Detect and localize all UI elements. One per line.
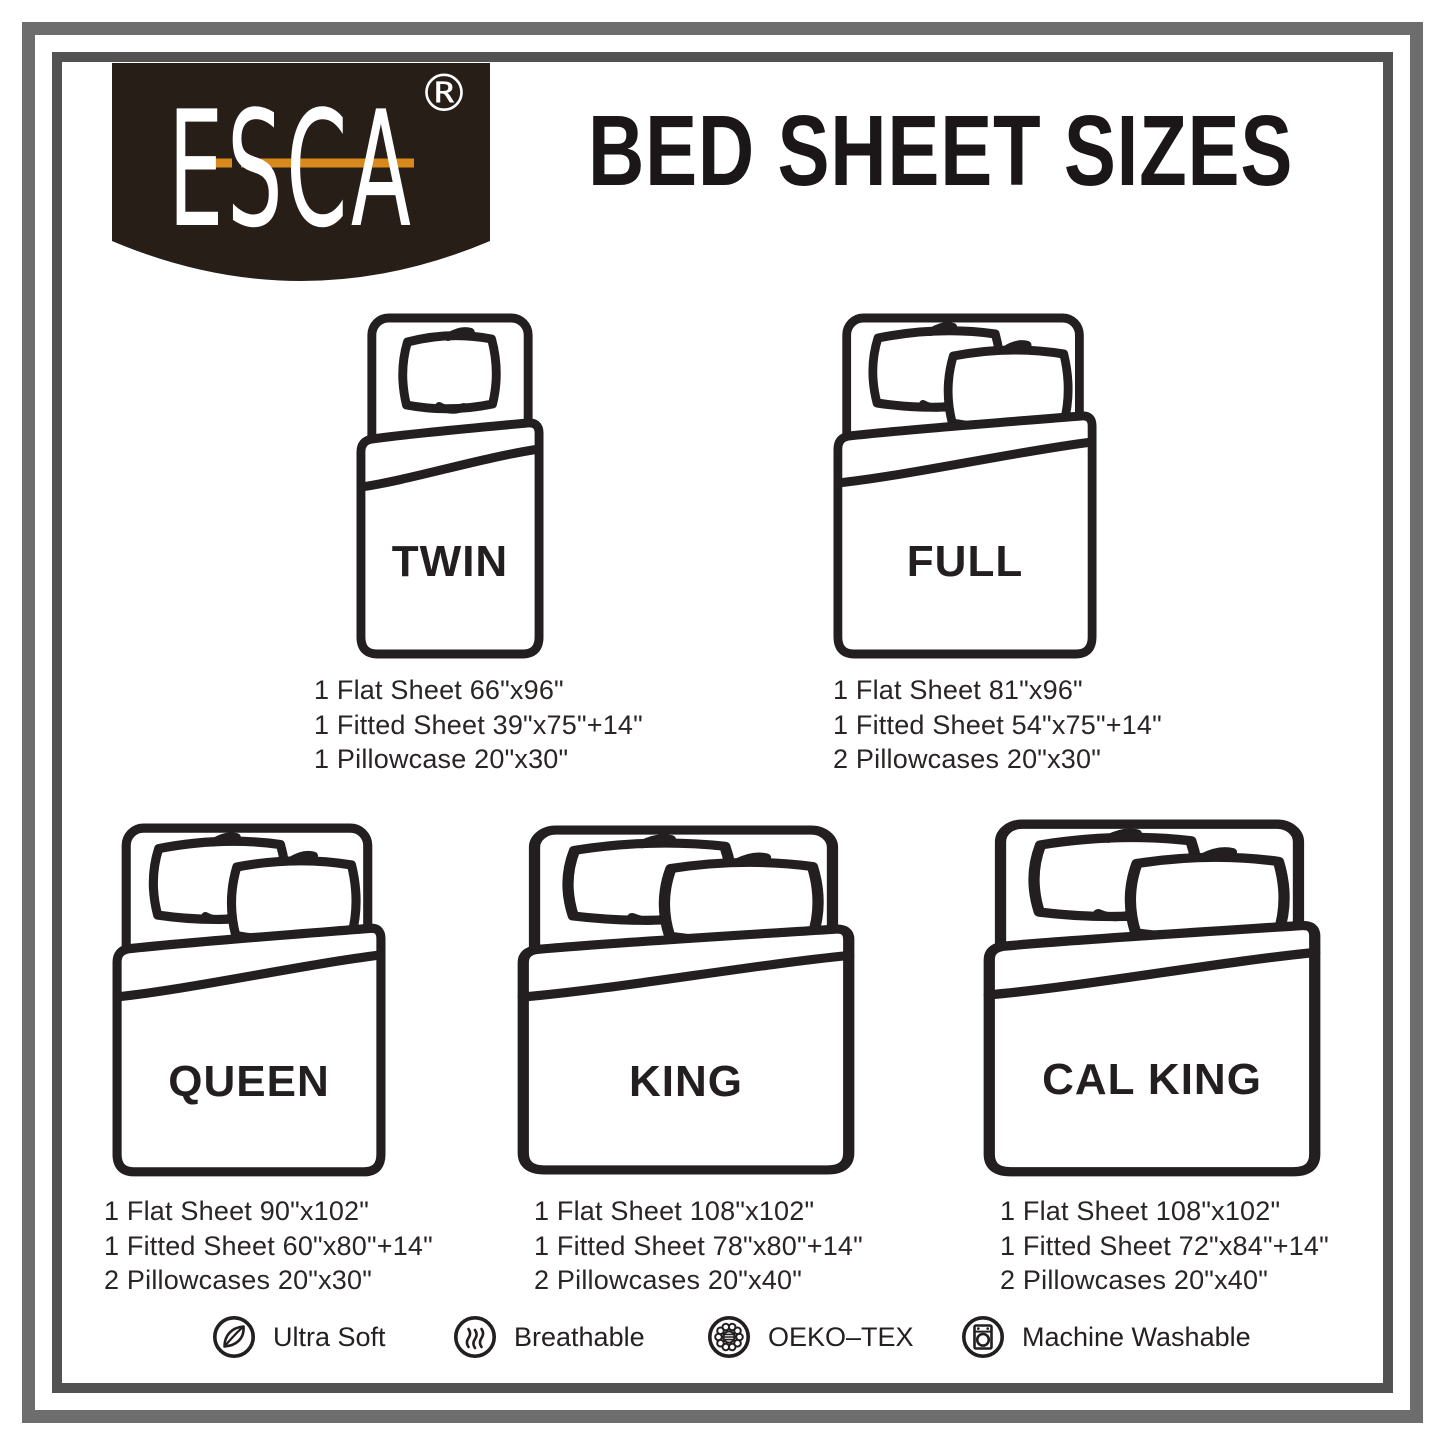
feature-breathable: Breathable	[452, 1314, 645, 1360]
size-card-queen: QUEEN	[112, 822, 386, 1180]
registered-trademark-icon: ®	[418, 64, 470, 124]
bed-size-label: TWIN	[356, 540, 544, 584]
bed-size-label: FULL	[833, 540, 1097, 584]
feature-machine-washable: Machine Washable	[960, 1314, 1251, 1360]
size-card-cal-king: CAL KING	[983, 818, 1321, 1180]
cal-king-specs: 1 Flat Sheet 108"x102" 1 Fitted Sheet 72…	[1000, 1194, 1329, 1298]
spec-line: 1 Flat Sheet 108"x102"	[534, 1194, 863, 1229]
feature-label: Machine Washable	[1022, 1314, 1251, 1360]
spec-line: 2 Pillowcases 20"x40"	[534, 1263, 863, 1298]
spec-line: 1 Flat Sheet 108"x102"	[1000, 1194, 1329, 1229]
full-specs: 1 Flat Sheet 81"x96" 1 Fitted Sheet 54"x…	[833, 673, 1162, 777]
size-card-king: KING	[517, 824, 855, 1178]
king-bed-icon	[517, 824, 855, 1178]
bed-size-label: KING	[517, 1060, 855, 1104]
spec-line: 1 Fitted Sheet 78"x80"+14"	[534, 1229, 863, 1264]
feature-oeko-tex: OEKO–TEX	[706, 1314, 914, 1360]
page-title: BED SHEET SIZES	[588, 96, 1290, 206]
bed-size-label: CAL KING	[983, 1058, 1321, 1102]
cal-king-bed-icon	[983, 818, 1321, 1180]
feature-ultra-soft: Ultra Soft	[211, 1314, 386, 1360]
spec-line: 1 Fitted Sheet 60"x80"+14"	[104, 1229, 433, 1264]
spec-line: 1 Flat Sheet 81"x96"	[833, 673, 1162, 708]
spec-line: 2 Pillowcases 20"x30"	[833, 742, 1162, 777]
spec-line: 2 Pillowcases 20"x40"	[1000, 1263, 1329, 1298]
brand-logo-badge: ESCA ®	[112, 63, 490, 303]
feature-label: Breathable	[514, 1314, 645, 1360]
queen-bed-icon	[112, 822, 386, 1180]
feature-label: Ultra Soft	[273, 1314, 386, 1360]
bed-size-label: QUEEN	[112, 1060, 386, 1104]
washing-machine-icon	[960, 1314, 1006, 1360]
brand-wordmark: ESCA	[168, 78, 414, 264]
size-card-full: FULL	[833, 312, 1097, 662]
spec-line: 1 Flat Sheet 66"x96"	[314, 673, 643, 708]
spec-line: 1 Fitted Sheet 39"x75"+14"	[314, 708, 643, 743]
bed-sheet-sizes-infographic: { "brand": { "name": "ESCA", "registered…	[0, 0, 1445, 1445]
full-bed-icon	[833, 312, 1097, 662]
spec-line: 1 Fitted Sheet 72"x84"+14"	[1000, 1229, 1329, 1264]
queen-specs: 1 Flat Sheet 90"x102" 1 Fitted Sheet 60"…	[104, 1194, 433, 1298]
spec-line: 2 Pillowcases 20"x30"	[104, 1263, 433, 1298]
twin-specs: 1 Flat Sheet 66"x96" 1 Fitted Sheet 39"x…	[314, 673, 643, 777]
spec-line: 1 Fitted Sheet 54"x75"+14"	[833, 708, 1162, 743]
spec-line: 1 Pillowcase 20"x30"	[314, 742, 643, 777]
airflow-icon	[452, 1314, 498, 1360]
king-specs: 1 Flat Sheet 108"x102" 1 Fitted Sheet 78…	[534, 1194, 863, 1298]
twin-bed-icon	[356, 312, 544, 662]
size-card-twin: TWIN	[356, 312, 544, 662]
leaf-icon	[211, 1314, 257, 1360]
oeko-tex-flower-icon	[706, 1314, 752, 1360]
spec-line: 1 Flat Sheet 90"x102"	[104, 1194, 433, 1229]
feature-label: OEKO–TEX	[768, 1314, 914, 1360]
